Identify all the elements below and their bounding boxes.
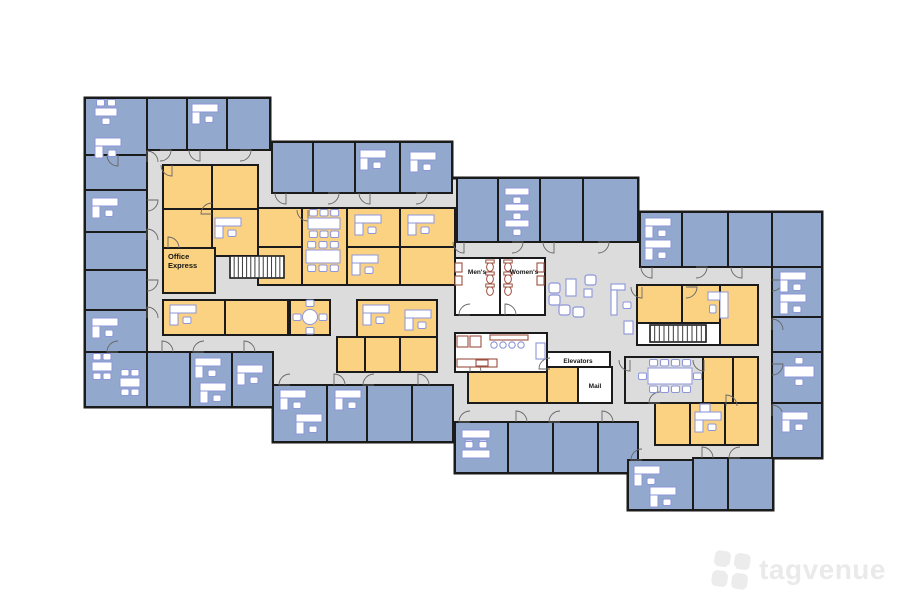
chair (647, 478, 655, 485)
lounge-armchair (559, 305, 570, 315)
chair (795, 379, 803, 386)
office-fixture (611, 284, 625, 290)
chair (121, 370, 129, 377)
chair (102, 118, 110, 125)
counter-fixture (490, 335, 528, 340)
counter-fixture (470, 336, 481, 347)
interior-office (400, 337, 437, 372)
chair (708, 424, 716, 431)
chair (793, 284, 801, 291)
office-fixture (536, 343, 545, 359)
office-room (313, 142, 355, 193)
chair (650, 386, 658, 393)
floorplan-svg: OfficeExpressMen'sWomen'sElevatorsMail (0, 0, 900, 600)
chair (93, 373, 101, 380)
chair (672, 360, 680, 367)
chair (661, 386, 669, 393)
chair (131, 389, 139, 396)
office-room (772, 212, 822, 267)
office-room (85, 155, 147, 190)
chair (365, 267, 373, 274)
chair (423, 164, 431, 171)
interior-office (682, 285, 720, 323)
chair (293, 314, 301, 321)
interior-office (703, 357, 733, 403)
stool (518, 342, 524, 348)
desk-chair (623, 302, 631, 309)
stool (509, 342, 515, 348)
chair (330, 265, 338, 272)
chair (320, 210, 328, 217)
stairwell (650, 325, 706, 342)
chair (320, 231, 328, 238)
tagvenue-watermark: tagvenue (711, 550, 886, 590)
office-room (540, 178, 583, 242)
chair (465, 442, 473, 449)
chair (108, 150, 116, 157)
chair (250, 377, 258, 384)
chair (418, 322, 426, 329)
office-room (272, 142, 313, 193)
chair (319, 242, 327, 249)
chair (376, 317, 384, 324)
office-room (693, 458, 728, 510)
office-room (553, 422, 598, 473)
office-fixture (700, 404, 710, 412)
chair (97, 100, 105, 107)
chair (513, 229, 521, 236)
office-room (508, 422, 553, 473)
toilet-fixture (486, 284, 494, 295)
counter-fixture (455, 276, 462, 285)
office-room (85, 270, 147, 310)
office-room (728, 212, 772, 267)
floorplan-canvas: OfficeExpressMen'sWomen'sElevatorsMail t… (0, 0, 900, 600)
office-room (147, 352, 190, 407)
chair (795, 358, 803, 365)
lounge-armchair (573, 307, 584, 317)
chair (694, 373, 702, 380)
chair (658, 252, 666, 259)
elevators-label: Elevators (563, 358, 593, 365)
interior-office (258, 208, 302, 247)
chair (103, 354, 111, 361)
chair (309, 231, 317, 238)
chair (306, 328, 314, 335)
chair (131, 370, 139, 377)
office-room (728, 458, 773, 510)
interior-office (337, 337, 365, 372)
chair (348, 402, 356, 409)
chair (683, 386, 691, 393)
chair (108, 100, 116, 107)
chair (330, 242, 338, 249)
toilet-fixture (486, 272, 494, 283)
womens-room-label: Women's (510, 269, 539, 276)
interior-office (212, 165, 258, 209)
counter-fixture (457, 336, 468, 347)
chair (213, 395, 221, 402)
chair (319, 265, 327, 272)
chair (513, 213, 521, 220)
office-fixture (566, 279, 576, 296)
interior-office (725, 403, 758, 445)
office-room (412, 385, 453, 442)
stairwell (230, 256, 284, 278)
lounge-armchair (549, 295, 560, 305)
interior-office (225, 300, 288, 335)
office-room (147, 98, 187, 150)
stool (491, 342, 497, 348)
interior-office (400, 247, 455, 285)
office-room (367, 385, 412, 442)
chair (373, 162, 381, 169)
chair (650, 360, 658, 367)
interior-office (733, 357, 758, 403)
chair (306, 300, 314, 307)
chair (368, 227, 376, 234)
chair (672, 386, 680, 393)
interior-office (655, 403, 690, 445)
chair (103, 373, 111, 380)
toilet-fixture (504, 284, 512, 295)
office-room (85, 232, 147, 270)
office-fixture (584, 289, 592, 297)
tagvenue-wordmark: tagvenue (759, 554, 886, 586)
office-fixture (611, 290, 617, 315)
office-room (583, 178, 638, 242)
interior-office (365, 337, 400, 372)
mens-room-label: Men's (468, 269, 487, 276)
chair (479, 442, 487, 449)
chair (513, 197, 521, 204)
chair (105, 210, 113, 217)
chair (661, 360, 669, 367)
interior-office (163, 209, 212, 248)
lounge-armchair (549, 283, 560, 293)
chair (795, 424, 803, 431)
office-room (457, 178, 498, 242)
office-room (682, 212, 728, 267)
chair (183, 317, 191, 324)
interior-office (637, 285, 682, 323)
office-room (227, 98, 270, 150)
meeting-table (306, 242, 340, 272)
chair (93, 354, 101, 361)
chair (710, 305, 717, 313)
chair (308, 242, 316, 249)
chair (309, 210, 317, 217)
chair (623, 302, 631, 309)
counter-fixture (537, 276, 544, 285)
toilet-fixture (486, 260, 494, 271)
tagvenue-logo-icon (711, 550, 751, 590)
chair (658, 230, 666, 237)
chair (319, 314, 327, 321)
mail-room-label: Mail (589, 383, 602, 390)
lounge-armchair (585, 275, 596, 285)
chair (309, 426, 317, 433)
counter-fixture (476, 360, 488, 366)
chair (331, 210, 339, 217)
chair (421, 227, 429, 234)
interior-office (547, 367, 578, 403)
meeting-table (308, 210, 340, 238)
counter-fixture (455, 263, 462, 272)
chair (293, 402, 301, 409)
chair (308, 265, 316, 272)
chair (793, 306, 801, 313)
chair (208, 370, 216, 377)
chair (205, 116, 213, 123)
chair (663, 499, 671, 506)
chair (331, 231, 339, 238)
chair (639, 373, 647, 380)
interior-office (163, 165, 212, 209)
chair (105, 330, 113, 337)
office-fixture (624, 321, 633, 334)
stool (500, 342, 506, 348)
chair (228, 230, 236, 237)
chair (121, 389, 129, 396)
chair (683, 360, 691, 367)
interior-office (468, 372, 547, 403)
